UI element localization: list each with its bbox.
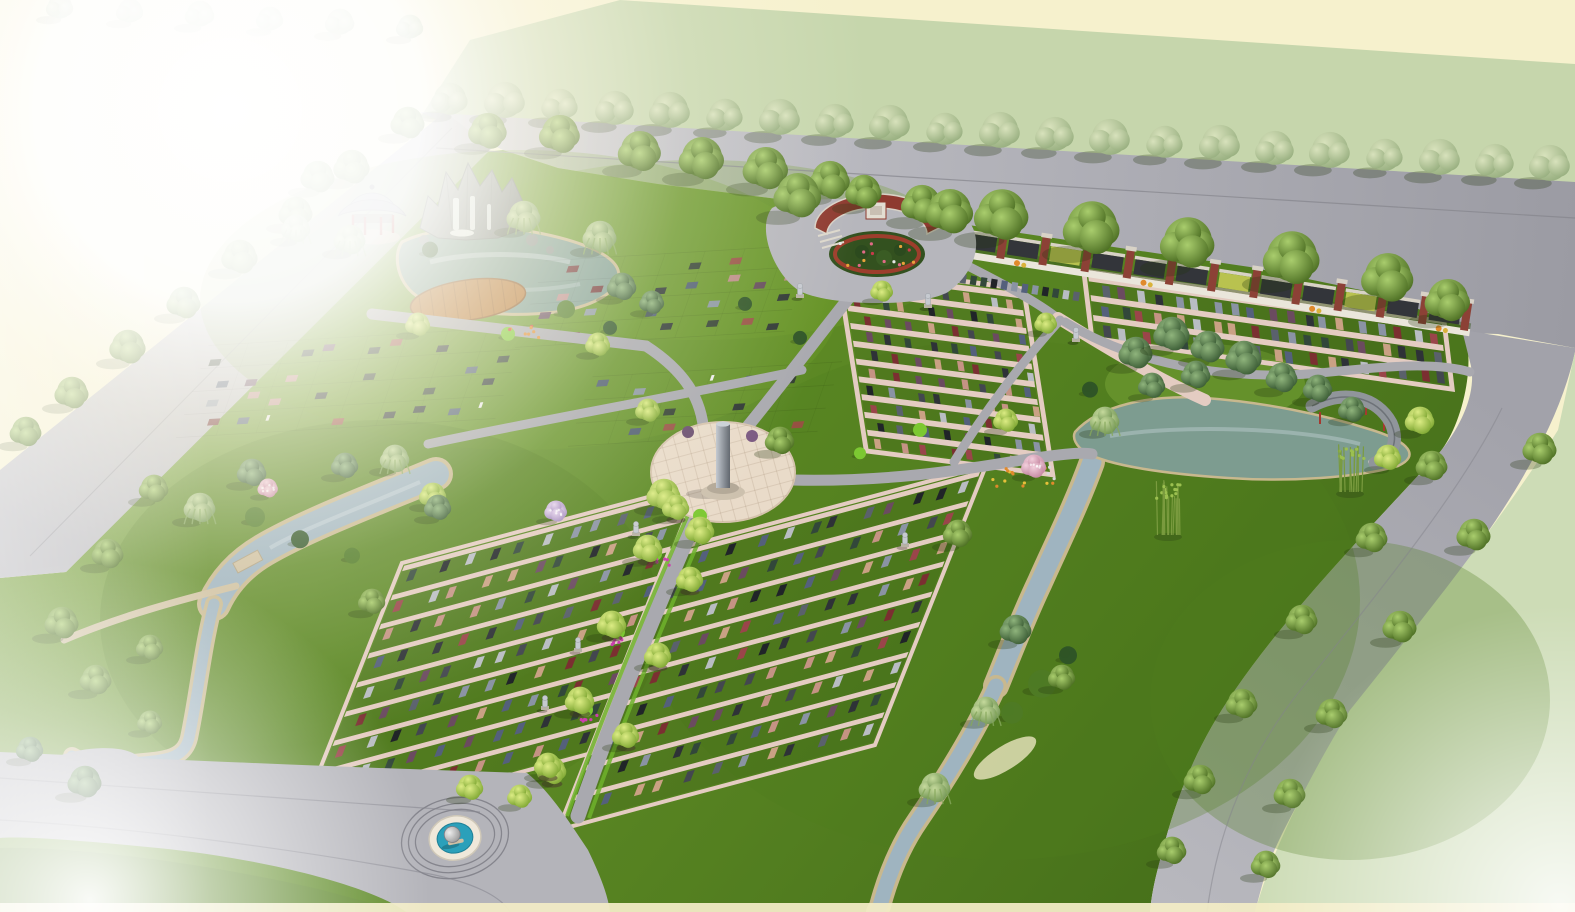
haze-bottom-right — [0, 0, 1575, 912]
site-plan-rendering: memorial-park-master-plan-aerial-renderi… — [0, 0, 1575, 912]
haze-overlay — [0, 0, 1575, 912]
